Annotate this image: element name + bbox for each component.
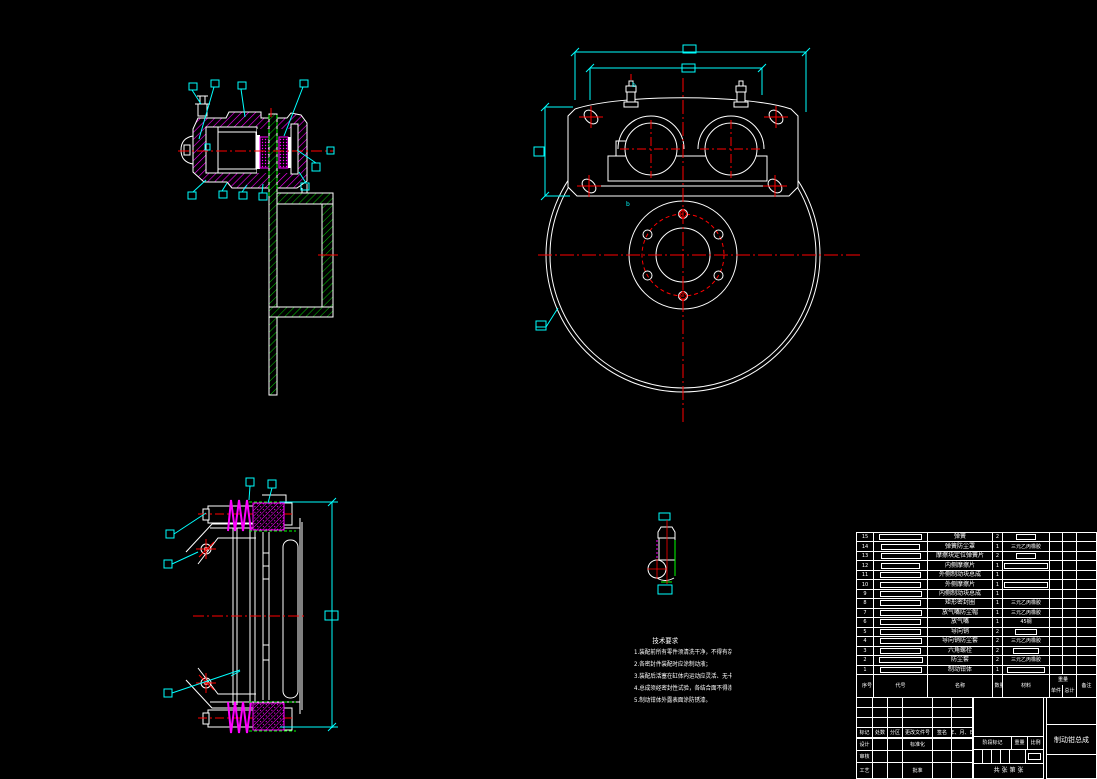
part-name: 弹簧防尘罩	[928, 542, 992, 550]
label-check: 审核	[857, 751, 872, 762]
balloon-label	[188, 192, 196, 199]
revision-table: 标记 处数 分区 更改文件号 签名 年、月、日	[856, 697, 973, 738]
dimension-label	[534, 147, 544, 156]
parts-table-row: 10 外侧摩擦片 1	[857, 580, 1096, 588]
part-material: 三元乙丙橡胶	[1003, 542, 1049, 550]
parts-table: 15 弹簧 2 14 弹簧防尘罩 1 三元乙丙橡胶 13 摩擦块定位弹簧片 2 …	[856, 532, 1097, 675]
note-line: 2.各密封件装配时应涂制动液；	[634, 659, 732, 671]
bleed-screw-right	[734, 81, 748, 107]
parts-table-row: 7 放气嘴防尘帽 1 三元乙丙橡胶	[857, 609, 1096, 617]
balloon-label	[164, 689, 172, 697]
part-material	[1003, 552, 1049, 560]
parts-table-row: 2 防尘套 2 三元乙丙橡胶	[857, 656, 1096, 664]
part-material	[1003, 561, 1049, 569]
label-approve: 批准	[903, 763, 932, 778]
section-mark-bottom: b	[626, 201, 630, 208]
note-line: 5.制动钳体外露表面涂防锈漆。	[634, 695, 732, 707]
part-weight-unit	[1050, 561, 1062, 569]
part-weight-unit	[1050, 637, 1062, 645]
part-name: 制动钳体	[928, 666, 992, 674]
part-weight-unit	[1050, 666, 1062, 674]
scale-value-box	[1026, 750, 1043, 763]
part-qty: 2	[993, 552, 1002, 560]
parts-table-row: 13 摩擦块定位弹簧片 2	[857, 552, 1096, 560]
part-remark	[1077, 666, 1096, 674]
part-seq: 3	[857, 647, 873, 655]
part-qty: 1	[993, 666, 1002, 674]
part-weight-total	[1063, 590, 1076, 598]
view-caliper-front: b b	[534, 45, 862, 425]
note-line: 1.装配前所有零件须清洗干净，不得有杂质污物；	[634, 647, 732, 659]
parts-table-row: 15 弹簧 2	[857, 533, 1096, 541]
parts-table-row: 14 弹簧防尘罩 1 三元乙丙橡胶	[857, 542, 1096, 550]
parts-table-row: 3 六角螺栓 2	[857, 647, 1096, 655]
note-line: 4.总成须经密封性试验，各结合面不得渗漏；	[634, 683, 732, 695]
view-bleed-screw-detail	[647, 513, 675, 594]
part-qty: 2	[993, 628, 1002, 636]
parts-table-row: 6 放气嘴 1 45钢	[857, 618, 1096, 626]
part-weight-total	[1063, 571, 1076, 579]
balloon-label	[189, 83, 197, 90]
header-name: 名称	[928, 675, 992, 697]
technical-notes: 技术要求 1.装配前所有零件须清洗干净，不得有杂质污物； 2.各密封件装配时应涂…	[634, 635, 740, 707]
part-name: 防尘套	[928, 656, 992, 664]
part-code-box	[874, 647, 927, 655]
part-remark	[1077, 542, 1096, 550]
part-weight-total	[1063, 542, 1076, 550]
disc-bell-section	[269, 184, 333, 317]
part-code-box	[874, 533, 927, 541]
part-code-box	[874, 618, 927, 626]
header-qty: 数量	[995, 684, 1001, 689]
parts-table-row: 11 外侧制动块总成 1	[857, 571, 1096, 579]
parts-table-row: 4 导向销防尘套 2 三元乙丙橡胶	[857, 637, 1096, 645]
part-code-box	[874, 628, 927, 636]
bushing-section	[253, 703, 284, 730]
part-weight-total	[1063, 599, 1076, 607]
part-weight-unit	[1050, 552, 1062, 560]
balloon-label	[219, 191, 227, 198]
parts-table-row: 9 内侧制动块总成 1	[857, 590, 1096, 598]
part-seq: 4	[857, 637, 873, 645]
rev-header-mark: 标记	[857, 728, 872, 737]
header-weight: 重量	[1050, 675, 1076, 684]
part-seq: 1	[857, 666, 873, 674]
label-design: 设计	[857, 739, 872, 750]
part-material: 45钢	[1003, 618, 1049, 626]
notes-title: 技术要求	[634, 635, 732, 647]
balloon-label	[164, 560, 172, 568]
label-weight: 重量	[1012, 737, 1027, 749]
part-name: 矩形密封圈	[928, 599, 992, 607]
balloon-label	[246, 478, 254, 486]
part-seq: 9	[857, 590, 873, 598]
part-qty: 1	[993, 580, 1002, 588]
part-code-box	[874, 609, 927, 617]
part-seq: 11	[857, 571, 873, 579]
part-remark	[1077, 571, 1096, 579]
part-weight-total	[1063, 561, 1076, 569]
part-weight-unit	[1050, 533, 1062, 541]
part-qty: 2	[993, 533, 1002, 541]
part-remark	[1077, 647, 1096, 655]
dimension-lines	[280, 498, 338, 731]
part-name: 六角螺栓	[928, 647, 992, 655]
part-qty: 1	[993, 571, 1002, 579]
part-qty: 1	[993, 561, 1002, 569]
part-name: 摩擦块定位弹簧片	[928, 552, 992, 560]
balloon-label	[300, 80, 308, 87]
part-weight-unit	[1050, 609, 1062, 617]
part-remark	[1077, 656, 1096, 664]
balloon-label	[268, 480, 276, 488]
note-line: 3.装配后活塞在缸体内运动应灵活、无卡滞；	[634, 671, 732, 683]
part-weight-total	[1063, 656, 1076, 664]
signature-table: 设计 标准化 审核 工艺 批准	[856, 738, 973, 779]
view-bracket-side	[164, 478, 338, 733]
part-qty: 2	[993, 656, 1002, 664]
part-code-box	[874, 637, 927, 645]
part-qty: 1	[993, 599, 1002, 607]
part-name: 放气嘴	[928, 618, 992, 626]
balloon-label	[259, 193, 267, 200]
part-qty: 2	[993, 647, 1002, 655]
part-qty: 1	[993, 609, 1002, 617]
part-seq: 7	[857, 609, 873, 617]
part-material	[1003, 590, 1049, 598]
part-name: 外侧摩擦片	[928, 580, 992, 588]
drawing-title: 制动钳总成	[1047, 725, 1096, 754]
part-seq: 15	[857, 533, 873, 541]
label-stage-mark: 阶段标记	[974, 737, 1011, 749]
part-seq: 2	[857, 656, 873, 664]
part-weight-unit	[1050, 580, 1062, 588]
part-material: 三元乙丙橡胶	[1003, 599, 1049, 607]
rev-header-sign: 签名	[933, 728, 951, 737]
view-caliper-section	[178, 80, 338, 395]
part-qty: 1	[993, 618, 1002, 626]
part-qty: 2	[993, 637, 1002, 645]
header-weight-total: 总计	[1063, 685, 1076, 697]
part-weight-total	[1063, 609, 1076, 617]
part-weight-unit	[1050, 542, 1062, 550]
parts-table-row: 5 导向销 2	[857, 628, 1096, 636]
part-remark	[1077, 637, 1096, 645]
balloon-label	[659, 513, 670, 520]
part-code-box	[874, 599, 927, 607]
part-remark	[1077, 609, 1096, 617]
balloon-label	[211, 80, 219, 87]
cad-canvas: b b	[0, 0, 1097, 779]
part-seq: 6	[857, 618, 873, 626]
part-seq: 13	[857, 552, 873, 560]
header-code: 代号	[874, 675, 927, 697]
balloon-label	[312, 163, 320, 171]
part-code-box	[874, 580, 927, 588]
part-code-box	[874, 561, 927, 569]
part-weight-unit	[1050, 647, 1062, 655]
header-remark: 备注	[1077, 675, 1096, 697]
part-remark	[1077, 628, 1096, 636]
header-weight-unit: 单件	[1050, 685, 1062, 697]
header-material: 材料	[1003, 675, 1049, 697]
part-weight-unit	[1050, 590, 1062, 598]
part-remark	[1077, 580, 1096, 588]
part-material	[1003, 533, 1049, 541]
balloon-label	[238, 82, 246, 89]
part-material	[1003, 666, 1049, 674]
part-code-box	[874, 542, 927, 550]
bushing-section	[253, 503, 284, 530]
label-scale: 比例	[1028, 737, 1043, 749]
rev-header-date: 年、月、日	[952, 728, 972, 737]
rev-header-zone: 分区	[888, 728, 902, 737]
balloon-label	[166, 530, 174, 538]
part-remark	[1077, 599, 1096, 607]
parts-table-row: 1 制动钳体 1	[857, 666, 1096, 674]
section-mark-top: b	[632, 82, 636, 89]
part-material	[1003, 571, 1049, 579]
part-remark	[1077, 533, 1096, 541]
header-seq: 序号	[862, 684, 868, 689]
bleed-screw-left	[624, 81, 638, 107]
part-qty: 1	[993, 542, 1002, 550]
part-name: 外侧制动块总成	[928, 571, 992, 579]
rev-header-count: 处数	[873, 728, 887, 737]
label-process: 工艺	[857, 763, 872, 778]
balloon-label	[536, 321, 546, 330]
part-weight-unit	[1050, 571, 1062, 579]
part-seq: 8	[857, 599, 873, 607]
part-material: 三元乙丙橡胶	[1003, 656, 1049, 664]
part-code-box	[874, 552, 927, 560]
part-weight-total	[1063, 533, 1076, 541]
balloon-label	[239, 192, 247, 199]
mounting-bolt-bottom	[196, 673, 216, 693]
guide-pin-top	[198, 495, 296, 531]
part-seq: 10	[857, 580, 873, 588]
parts-table-row: 8 矩形密封圈 1 三元乙丙橡胶	[857, 599, 1096, 607]
part-code-box	[874, 590, 927, 598]
part-code-box	[874, 666, 927, 674]
part-weight-unit	[1050, 656, 1062, 664]
part-remark	[1077, 561, 1096, 569]
part-remark	[1077, 618, 1096, 626]
part-weight-total	[1063, 647, 1076, 655]
sheet-count: 共 张 第 张	[974, 764, 1043, 778]
part-material	[1003, 647, 1049, 655]
brake-disc-section	[269, 114, 277, 395]
part-weight-total	[1063, 552, 1076, 560]
stage-block: 阶段标记 重量 比例 共 张 第 张	[973, 697, 1044, 779]
part-remark	[1077, 590, 1096, 598]
part-name: 弹簧	[928, 533, 992, 541]
part-weight-total	[1063, 628, 1076, 636]
part-weight-total	[1063, 618, 1076, 626]
part-weight-total	[1063, 637, 1076, 645]
part-name: 内侧摩擦片	[928, 561, 992, 569]
title-name-block: 制动钳总成	[1046, 697, 1097, 779]
part-weight-total	[1063, 666, 1076, 674]
guide-pin-bottom	[198, 702, 296, 733]
part-name: 导向销	[928, 628, 992, 636]
part-weight-unit	[1050, 618, 1062, 626]
part-seq: 14	[857, 542, 873, 550]
parts-table-header: 序号 代号 名称 数量 材料 重量 单件 总计 备注	[856, 674, 1097, 698]
part-name: 放气嘴防尘帽	[928, 609, 992, 617]
part-seq: 12	[857, 561, 873, 569]
part-weight-total	[1063, 580, 1076, 588]
part-name: 导向销防尘套	[928, 637, 992, 645]
label-standard: 标准化	[903, 739, 932, 750]
part-weight-unit	[1050, 628, 1062, 636]
part-material: 三元乙丙橡胶	[1003, 637, 1049, 645]
part-remark	[1077, 552, 1096, 560]
outer-pad-section	[279, 137, 288, 168]
inner-pad-section	[260, 137, 269, 168]
part-material	[1003, 580, 1049, 588]
mounting-bolt-top	[196, 539, 216, 559]
part-code-box	[874, 571, 927, 579]
part-qty: 1	[993, 590, 1002, 598]
part-material: 三元乙丙橡胶	[1003, 609, 1049, 617]
bleed-screw-part	[648, 527, 675, 581]
rev-header-docno: 更改文件号	[903, 728, 932, 737]
part-material	[1003, 628, 1049, 636]
part-weight-unit	[1050, 599, 1062, 607]
balloon-label	[658, 585, 672, 594]
part-code-box	[874, 656, 927, 664]
part-name: 内侧制动块总成	[928, 590, 992, 598]
header-weight-group: 重量 单件 总计	[1050, 675, 1076, 697]
part-seq: 5	[857, 628, 873, 636]
parts-table-row: 12 内侧摩擦片 1	[857, 561, 1096, 569]
